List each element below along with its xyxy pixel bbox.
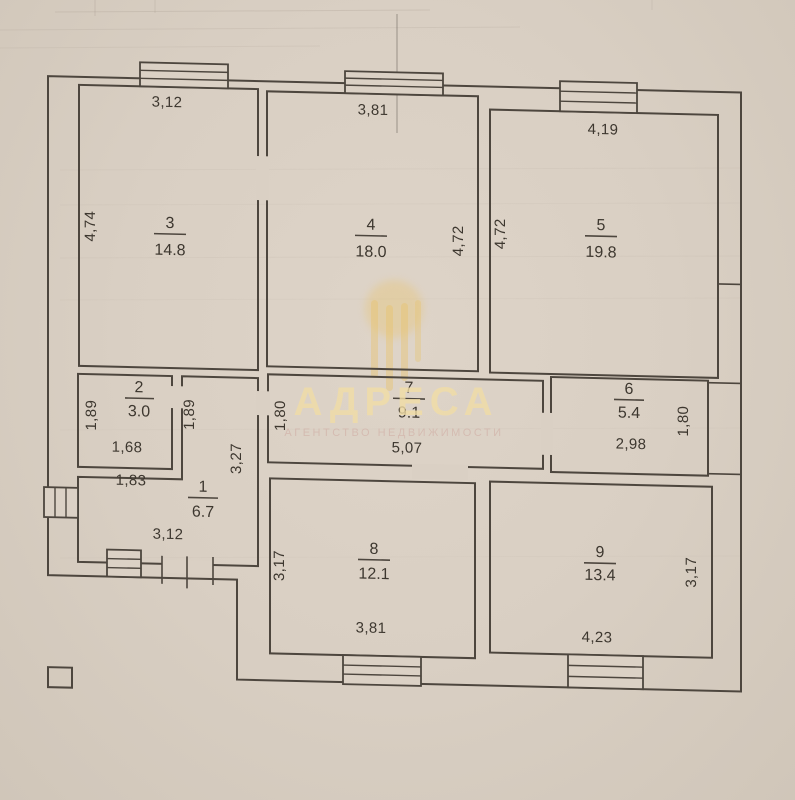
- room-6-height-dim: 1,80: [675, 406, 692, 437]
- ghost-line: [60, 203, 740, 205]
- room-6-number: 6: [625, 381, 634, 398]
- window-symbol: [107, 550, 141, 578]
- room-2-area: 3.0: [128, 403, 150, 421]
- window-symbol: [568, 654, 643, 689]
- ghost-line: [0, 46, 320, 48]
- room-7-width-dim: 5,07: [392, 439, 423, 457]
- door-opening: [256, 156, 269, 200]
- room-6-area: 5.4: [618, 405, 640, 423]
- room-5-area: 19.8: [585, 244, 616, 262]
- room-3-width-dim: 3,12: [152, 94, 183, 112]
- watermark-brand-text: АДРЕСА: [293, 380, 498, 424]
- room-1-height-dim: 3,27: [228, 443, 245, 474]
- room-8-number: 8: [370, 541, 379, 558]
- room-1-fraction-bar: [188, 497, 218, 498]
- window-symbol: [345, 71, 443, 95]
- room-5-number: 5: [597, 217, 606, 234]
- room-8-fraction-bar: [358, 559, 390, 560]
- room-8-height-dim: 3,17: [271, 550, 288, 581]
- ghost-line: [60, 168, 740, 170]
- room-5-height-dim: 4,72: [492, 218, 509, 249]
- watermark-strand: [415, 300, 421, 362]
- watermark-tagline-text: АГЕНТСТВО НЕДВИЖИМОСТИ: [284, 427, 503, 439]
- wall-connector: [708, 383, 741, 384]
- wall-connector: [708, 474, 741, 475]
- room-9-height-dim: 3,17: [683, 557, 700, 588]
- room-8-width-dim: 3,81: [356, 619, 387, 637]
- watermark-strand: [371, 300, 378, 378]
- window-symbol: [560, 81, 637, 113]
- room-3-area: 14.8: [154, 242, 185, 260]
- ghost-line: [0, 27, 520, 30]
- agency-watermark-text: АДРЕСА АГЕНТСТВО НЕДВИЖИМОСТИ: [284, 380, 503, 439]
- stamp-box: [48, 667, 72, 688]
- room-2-height-left-dim: 1,89: [83, 400, 100, 431]
- window-symbol: [44, 487, 78, 518]
- room-5-width-dim: 4,19: [588, 121, 619, 139]
- agency-watermark: [365, 280, 423, 391]
- room-4-fraction-bar: [355, 235, 387, 236]
- room-4-width-dim: 3,81: [358, 101, 389, 119]
- room-3-fraction-bar: [154, 234, 186, 235]
- ghost-line: [55, 10, 430, 12]
- floor-plan-drawing: 3,12 4,74 3 14.8 3,81 4,72 4 18.0 4,19 4…: [0, 0, 795, 800]
- room-9-number: 9: [596, 544, 605, 561]
- room-4-height-dim: 4,72: [450, 225, 467, 256]
- room-8-area: 12.1: [358, 565, 389, 583]
- room-2-height-right-dim: 1,89: [181, 399, 198, 430]
- room-3-height-dim: 4,74: [82, 211, 99, 242]
- room-6-width-dim: 2,98: [616, 436, 647, 454]
- room-5-fraction-bar: [585, 236, 617, 237]
- room-1-top-width-dim: 1,83: [116, 472, 147, 490]
- room-1-number: 1: [199, 479, 208, 496]
- window-symbol: [140, 62, 228, 88]
- room-2-number: 2: [135, 379, 144, 396]
- room-9-area: 13.4: [584, 567, 615, 585]
- door-opening: [256, 391, 270, 415]
- scanned-floor-plan-photo: 3,12 4,74 3 14.8 3,81 4,72 4 18.0 4,19 4…: [0, 0, 795, 800]
- window-symbol: [343, 655, 421, 686]
- door-opening: [541, 413, 553, 455]
- room-1-area: 6.7: [192, 504, 214, 522]
- door-opening: [412, 464, 468, 480]
- wall-connector: [718, 284, 741, 285]
- room-3-number: 3: [166, 215, 175, 232]
- room-2-fraction-bar: [125, 398, 154, 399]
- room-4-number: 4: [367, 217, 376, 234]
- room-4-area: 18.0: [355, 243, 386, 261]
- room-2-width-dim: 1,68: [112, 439, 143, 457]
- room-6-fraction-bar: [614, 399, 644, 400]
- room-1-bottom-width-dim: 3,12: [153, 526, 184, 544]
- room-9-width-dim: 4,23: [582, 629, 613, 647]
- room-9-fraction-bar: [584, 563, 616, 564]
